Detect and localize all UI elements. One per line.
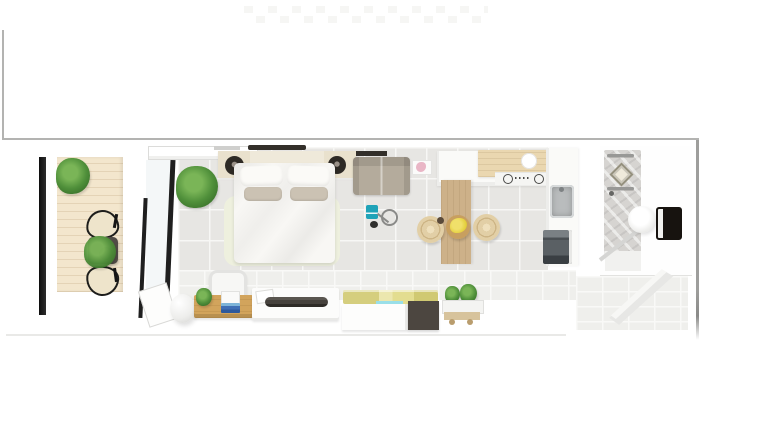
trolley-wheel <box>449 319 455 325</box>
trolley-wheel <box>467 319 473 325</box>
espresso-cup <box>437 217 444 224</box>
bed-pillow <box>240 165 284 186</box>
daybed-charcoal-body <box>408 301 439 330</box>
blue-books-stack <box>221 303 240 313</box>
mirror-cabinet <box>656 207 682 240</box>
bed-pillow <box>287 165 331 186</box>
towel-bar <box>607 154 634 157</box>
bed-accent-pillow <box>290 187 328 201</box>
cooktop-burner-icon <box>534 174 544 184</box>
frame-left-line <box>2 30 4 138</box>
cooktop-burner-icon <box>503 174 513 184</box>
vessel-sink <box>628 206 655 233</box>
shower-handle-knob <box>609 191 614 196</box>
bar-stool-right <box>473 214 500 241</box>
floorplan-render <box>0 0 768 432</box>
frame-right-line <box>696 140 699 340</box>
wall-decor-bar <box>248 145 306 150</box>
watermark-marks <box>244 6 488 24</box>
sofa-wall-shelf <box>356 151 387 156</box>
soundbar <box>265 297 328 307</box>
worktop-sink-hole <box>521 153 537 169</box>
loveseat-sofa <box>353 157 410 195</box>
frame-bottom-shadow-line <box>6 334 566 336</box>
wall-decor-bar-gray <box>214 146 240 150</box>
daybed-white-body <box>342 304 408 330</box>
balcony-dark-pillar <box>39 157 46 315</box>
floor-object-dark <box>370 221 378 228</box>
shower-handle-bar <box>607 187 634 190</box>
sink-faucet <box>559 187 564 192</box>
frame-top-line <box>2 138 699 140</box>
egg-floor-lamp <box>170 294 195 323</box>
oven-appliance <box>543 230 572 264</box>
cooktop-knob-dots <box>515 177 529 179</box>
teal-book <box>366 205 378 219</box>
bed-accent-pillow <box>244 187 282 201</box>
